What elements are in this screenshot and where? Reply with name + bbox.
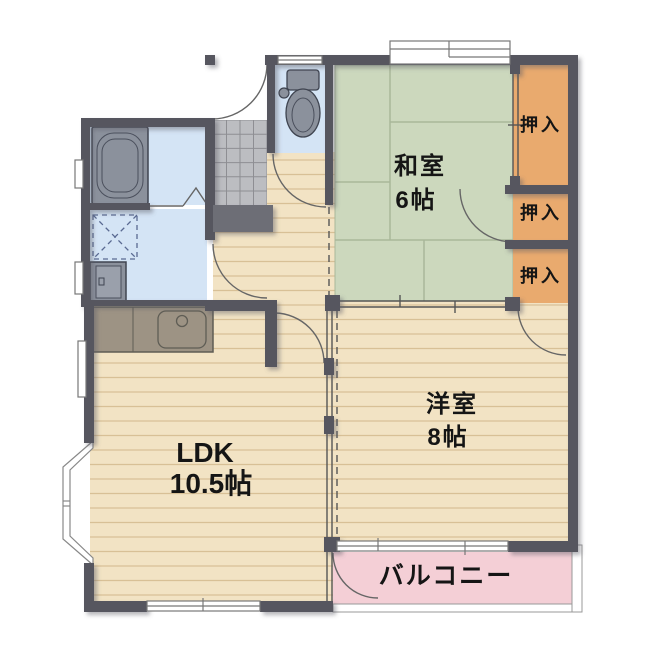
balcony-rail-bottom bbox=[333, 604, 582, 612]
floorplan: 和室 6帖 洋室 8帖 LDK 10.5帖 バルコニー 押入 押入 押入 bbox=[0, 0, 662, 663]
western-size-label: 8帖 bbox=[427, 424, 468, 451]
bay-window bbox=[63, 441, 93, 565]
entrance-door-arc bbox=[212, 64, 267, 119]
washitsu-room bbox=[335, 65, 513, 301]
toilet-window bbox=[278, 56, 322, 64]
closet-3-label: 押入 bbox=[520, 265, 562, 286]
washbasin bbox=[90, 262, 126, 302]
balcony-label: バルコニー bbox=[379, 562, 514, 590]
closet-2-label: 押入 bbox=[520, 202, 562, 223]
closet-1-label: 押入 bbox=[520, 114, 562, 135]
kitchen-window bbox=[78, 341, 86, 397]
washroom-window bbox=[75, 262, 83, 294]
washitsu-window bbox=[390, 41, 510, 64]
entrance-genkan bbox=[213, 120, 267, 205]
bathtub bbox=[92, 127, 148, 204]
floorplan-canvas: 和室 6帖 洋室 8帖 LDK 10.5帖 バルコニー 押入 押入 押入 bbox=[0, 0, 662, 663]
washitsu-size-label: 6帖 bbox=[395, 187, 436, 214]
wall-bottom bbox=[84, 601, 147, 612]
genkan-step bbox=[213, 205, 273, 232]
ldk-size-label: 10.5帖 bbox=[170, 468, 253, 499]
wall-right bbox=[568, 55, 578, 552]
ldk-name-label: LDK bbox=[176, 437, 234, 468]
kitchen-counter bbox=[90, 307, 213, 352]
washitsu-name-label: 和室 bbox=[394, 152, 446, 180]
balcony-rail-right bbox=[572, 545, 582, 612]
bathroom-window bbox=[75, 160, 83, 188]
western-name-label: 洋室 bbox=[426, 390, 478, 418]
